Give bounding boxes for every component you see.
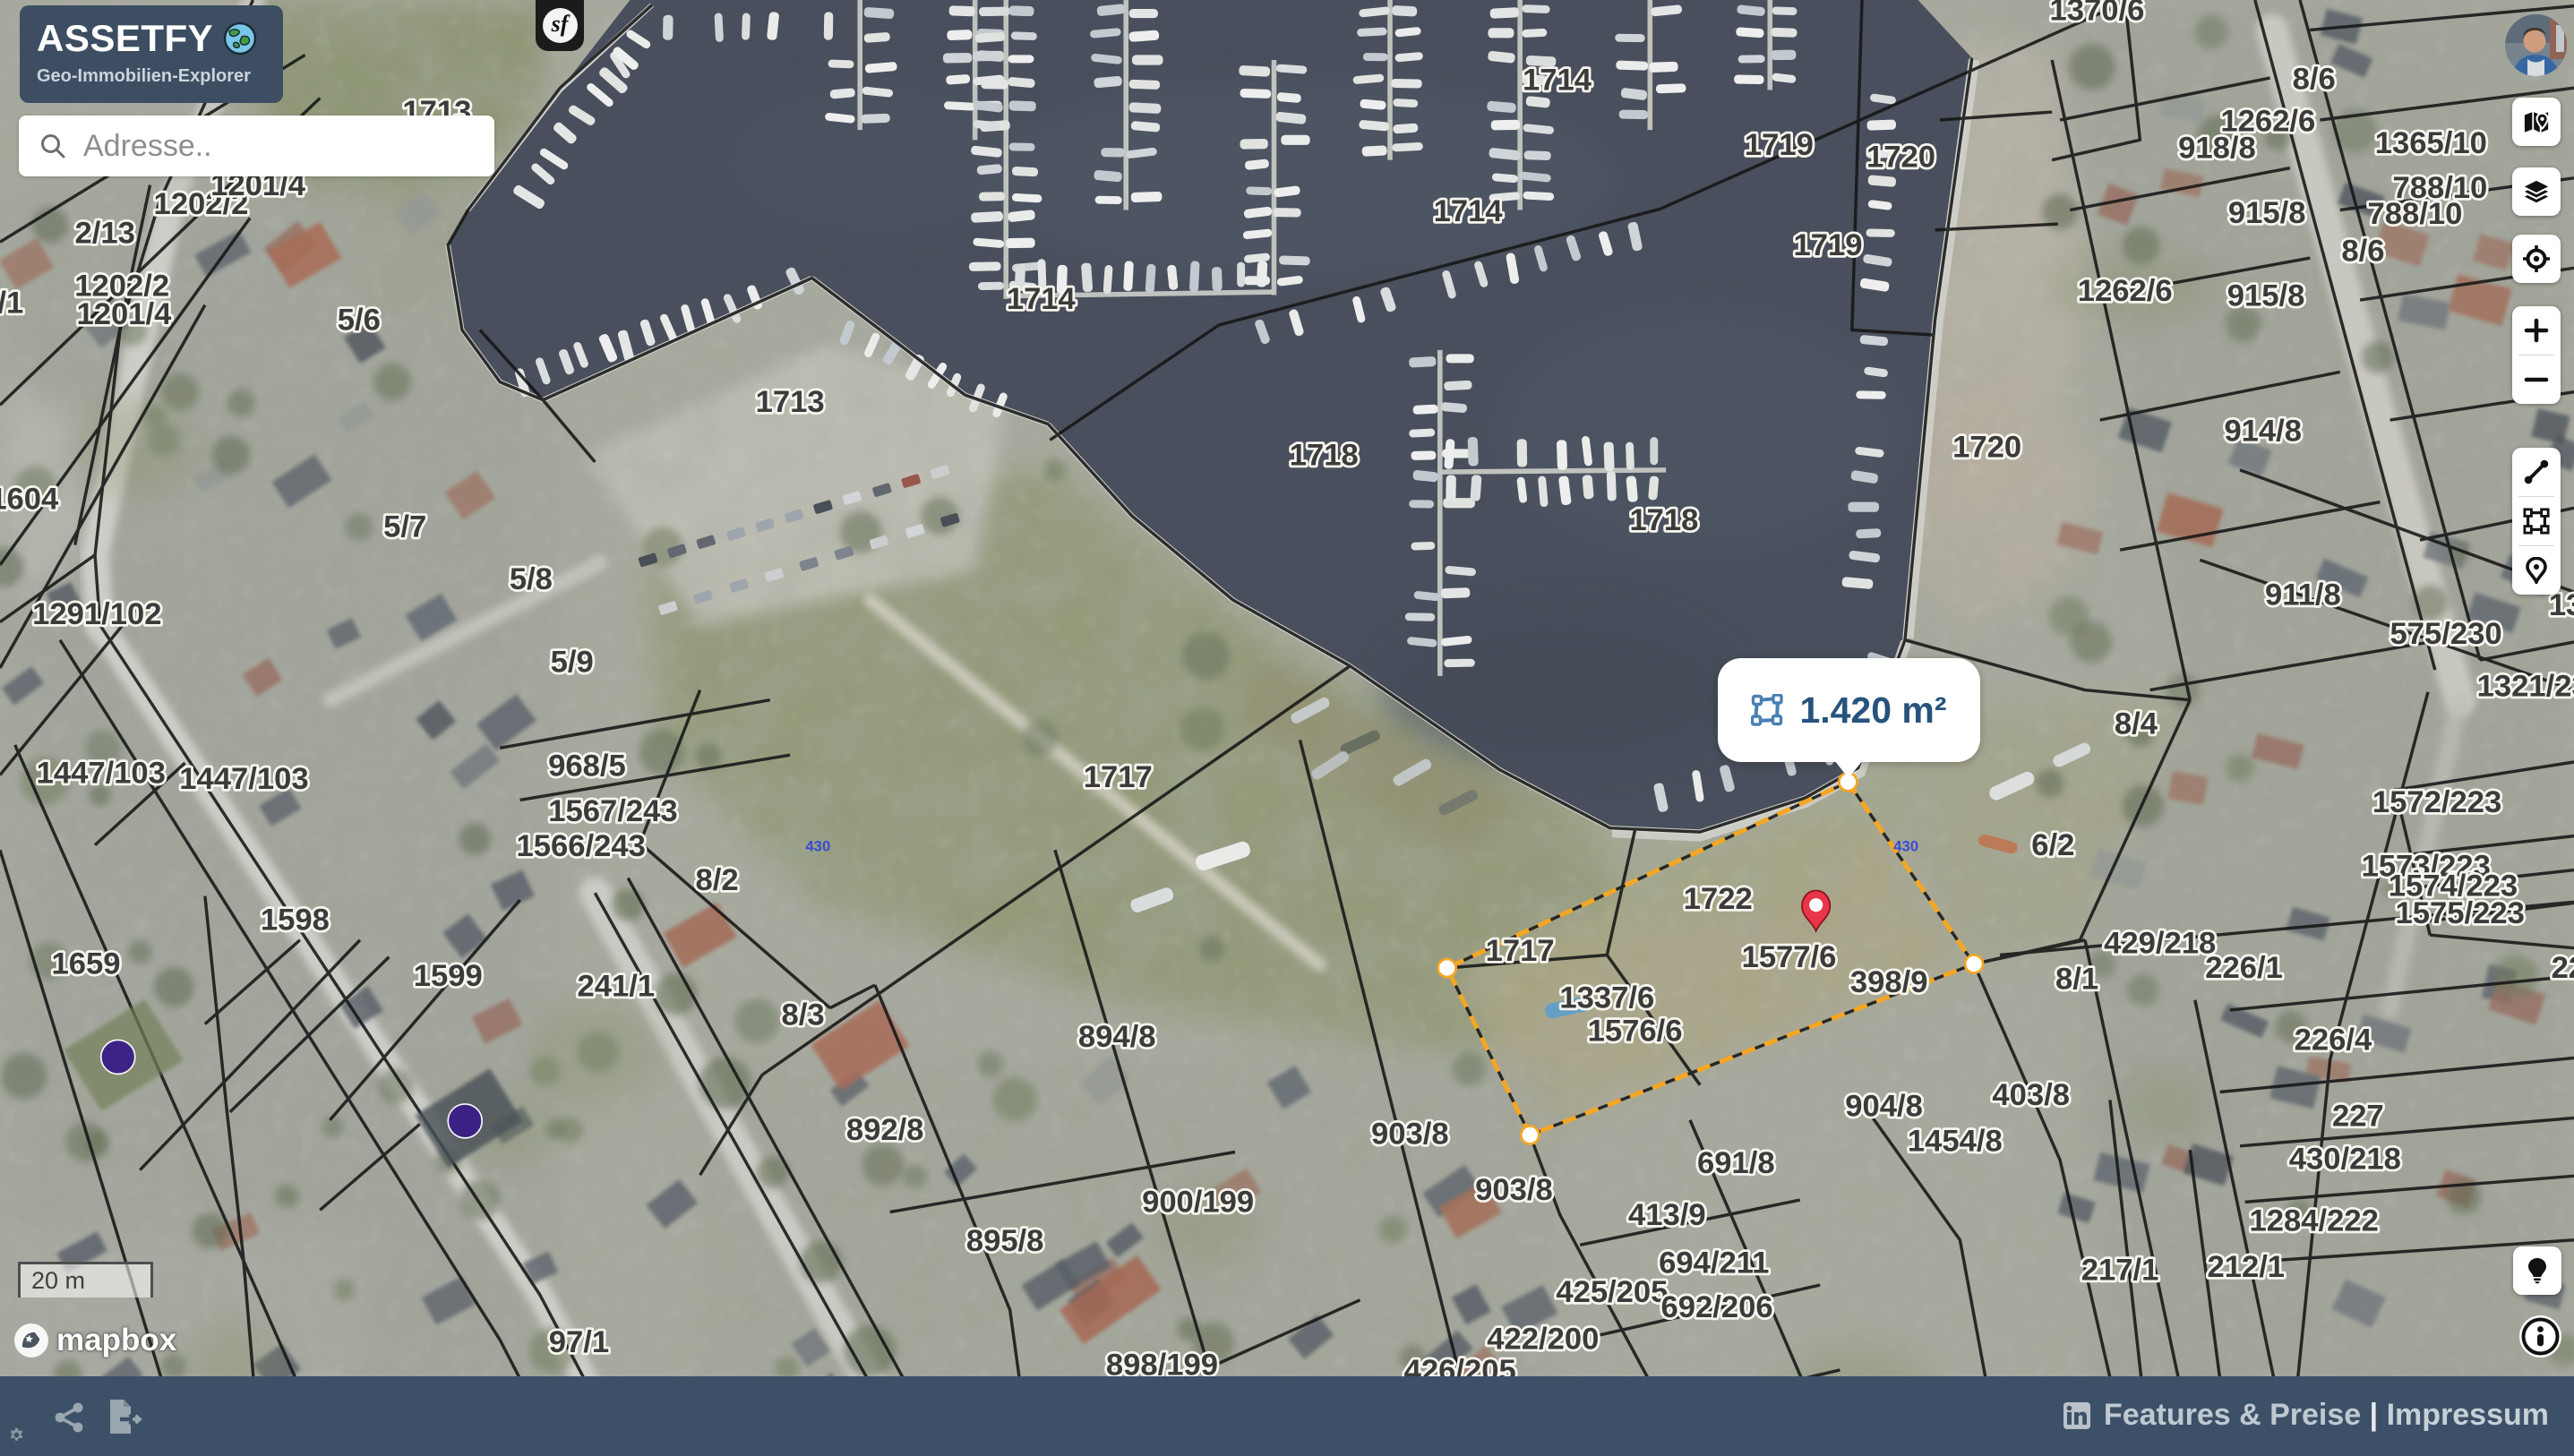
svg-text:398/9: 398/9: [1850, 965, 1928, 999]
svg-text:5/9: 5/9: [551, 645, 594, 679]
svg-text:8/6: 8/6: [2341, 234, 2384, 268]
svg-text:911/8: 911/8: [2265, 578, 2341, 612]
svg-text:1598: 1598: [261, 904, 330, 938]
svg-text:914/8: 914/8: [2224, 414, 2302, 448]
svg-text:692/206: 692/206: [1661, 1290, 1773, 1324]
svg-text:403/8: 403/8: [1992, 1078, 2070, 1112]
svg-text:1577/6: 1577/6: [1742, 940, 1837, 974]
svg-text:1720: 1720: [1952, 430, 2021, 464]
svg-text:1454/8: 1454/8: [1908, 1124, 2003, 1158]
svg-text:1/1: 1/1: [0, 287, 23, 321]
svg-text:429/218: 429/218: [2104, 926, 2216, 960]
svg-text:226/1: 226/1: [2552, 951, 2574, 985]
svg-text:1714: 1714: [1434, 194, 1504, 228]
svg-text:575/230: 575/230: [2390, 617, 2502, 651]
svg-text:6/2: 6/2: [2031, 828, 2074, 862]
svg-text:1447/103: 1447/103: [179, 762, 308, 796]
svg-text:212/1: 212/1: [2207, 1250, 2285, 1284]
svg-text:8/4: 8/4: [2115, 707, 2158, 741]
svg-text:413/9: 413/9: [1628, 1198, 1706, 1232]
svg-text:1284/222: 1284/222: [2250, 1204, 2379, 1238]
svg-text:217/1: 217/1: [2081, 1253, 2159, 1287]
svg-text:1566/243: 1566/243: [517, 829, 646, 863]
svg-text:2/13: 2/13: [75, 216, 135, 250]
svg-text:1717: 1717: [1486, 934, 1555, 968]
svg-text:1599: 1599: [414, 959, 483, 993]
svg-text:903/8: 903/8: [1475, 1173, 1553, 1207]
svg-text:1262/6: 1262/6: [2078, 274, 2173, 308]
svg-text:691/8: 691/8: [1697, 1146, 1775, 1180]
svg-text:5/8: 5/8: [510, 562, 553, 596]
svg-text:1572/223: 1572/223: [2372, 785, 2501, 819]
svg-text:1604: 1604: [0, 482, 59, 516]
svg-text:5/7: 5/7: [383, 510, 426, 544]
svg-text:1447/103: 1447/103: [37, 756, 166, 790]
svg-text:430: 430: [1893, 837, 1918, 854]
svg-text:5/6: 5/6: [338, 304, 381, 338]
svg-text:8/6: 8/6: [2293, 62, 2336, 96]
svg-text:1720: 1720: [1866, 140, 1935, 174]
svg-text:8/3: 8/3: [782, 998, 825, 1032]
svg-text:1201/4: 1201/4: [77, 297, 173, 331]
svg-text:1575/223: 1575/223: [2396, 896, 2525, 930]
svg-text:430/218: 430/218: [2289, 1142, 2401, 1176]
svg-text:1719: 1719: [1745, 128, 1814, 162]
svg-text:430: 430: [805, 837, 830, 854]
svg-text:694/211: 694/211: [1659, 1246, 1769, 1280]
svg-text:1576/6: 1576/6: [1588, 1015, 1683, 1049]
svg-text:226/1: 226/1: [2205, 951, 2283, 985]
svg-text:1713: 1713: [756, 385, 825, 419]
svg-text:1337/6: 1337/6: [1559, 981, 1654, 1015]
svg-text:227: 227: [2332, 1099, 2384, 1133]
svg-text:915/8: 915/8: [2228, 196, 2306, 230]
svg-text:895/8: 895/8: [966, 1224, 1044, 1258]
svg-text:1291/102: 1291/102: [32, 597, 161, 631]
svg-text:241/1: 241/1: [577, 969, 655, 1003]
svg-text:903/8: 903/8: [1371, 1118, 1449, 1152]
svg-text:97/1: 97/1: [549, 1325, 609, 1359]
svg-text:894/8: 894/8: [1078, 1020, 1156, 1054]
svg-text:1365/10: 1365/10: [2375, 126, 2487, 160]
svg-text:1718: 1718: [1290, 438, 1359, 472]
svg-text:1722: 1722: [1684, 882, 1753, 916]
svg-text:968/5: 968/5: [548, 749, 626, 784]
svg-text:918/8: 918/8: [2178, 131, 2256, 165]
svg-text:1717: 1717: [1084, 760, 1153, 794]
svg-text:8/2: 8/2: [696, 863, 739, 897]
svg-text:226/4: 226/4: [2295, 1023, 2372, 1058]
svg-text:1719: 1719: [1794, 228, 1863, 262]
svg-text:900/199: 900/199: [1142, 1186, 1254, 1220]
svg-text:788/10: 788/10: [2392, 171, 2487, 205]
svg-text:904/8: 904/8: [1845, 1089, 1923, 1123]
svg-text:422/200: 422/200: [1487, 1323, 1599, 1357]
svg-text:1567/243: 1567/243: [548, 794, 677, 828]
svg-text:915/8: 915/8: [2227, 279, 2305, 313]
svg-text:892/8: 892/8: [846, 1113, 924, 1147]
svg-text:1714: 1714: [1007, 282, 1077, 316]
svg-text:1659: 1659: [52, 947, 121, 981]
svg-text:1321/23: 1321/23: [2477, 669, 2574, 703]
svg-text:1370/6: 1370/6: [2049, 0, 2144, 27]
svg-text:1718: 1718: [1629, 503, 1698, 537]
svg-text:1714: 1714: [1523, 64, 1592, 98]
svg-text:425/205: 425/205: [1556, 1275, 1668, 1309]
svg-text:8/1: 8/1: [2055, 962, 2098, 996]
